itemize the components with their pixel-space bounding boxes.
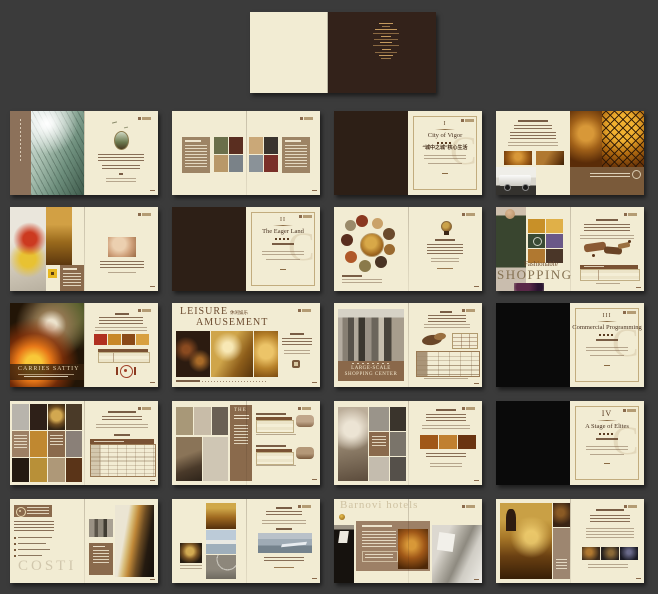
- chapter-text-lines: [428, 163, 462, 166]
- brand-mark: [298, 505, 311, 508]
- table-body: [256, 420, 294, 433]
- page-fold: [84, 207, 85, 291]
- photo-tile: [66, 458, 82, 482]
- toc-line: [381, 36, 391, 37]
- chapter-script-title: Commercial Programming: [570, 325, 644, 332]
- spread-photo-band: [172, 111, 320, 195]
- photo-tile: [30, 431, 47, 457]
- page-fold: [246, 401, 247, 485]
- chapter-text-lines: [586, 347, 628, 352]
- panel-text-lines: [93, 550, 109, 564]
- vertical-text-lines: [20, 119, 21, 161]
- table-caption: [114, 434, 130, 436]
- blank-black-page: [496, 401, 570, 485]
- panel-heading-line: [63, 268, 77, 270]
- paragraph-lines: [14, 521, 54, 533]
- photo-flowers: [514, 283, 544, 291]
- ring-logo: [533, 237, 542, 246]
- caption-lines: [588, 564, 628, 569]
- tile-text-lines: [556, 559, 567, 569]
- chapter-bold-line: [596, 339, 618, 341]
- text-lines: [508, 142, 558, 148]
- photo-tile: [546, 234, 563, 248]
- ornament-rule: [597, 321, 617, 322]
- photo-tile: [66, 404, 82, 430]
- spaced-characters-line: [437, 142, 453, 144]
- knife-icon: [134, 367, 136, 375]
- brand-mark: [299, 215, 312, 218]
- table-header-text: [584, 266, 604, 268]
- spread-award: [334, 207, 482, 291]
- text-lines: [284, 350, 310, 355]
- photo-tile: [66, 431, 82, 457]
- heading-line: [440, 311, 452, 313]
- table-header-text: [94, 441, 124, 443]
- bullet-line: [18, 549, 50, 550]
- text-lines: [266, 511, 302, 517]
- map-dot: [592, 254, 595, 257]
- caption-lines: [342, 279, 382, 284]
- chapter-text-lines: [586, 446, 628, 451]
- bullet: [14, 537, 16, 539]
- page-number: [474, 286, 479, 287]
- toc-line: [373, 45, 399, 46]
- photo-building: [206, 530, 236, 554]
- bullet-line: [18, 537, 52, 538]
- photo-stained-glass: [602, 111, 644, 167]
- intro-text-lines: [98, 154, 144, 162]
- photo-dark: [601, 547, 619, 560]
- photo-restaurant: [420, 435, 438, 449]
- chapter-bold-line: [596, 438, 618, 440]
- panel-heading-line: [285, 140, 301, 142]
- bullet: [14, 555, 16, 557]
- brand-mark: [298, 309, 311, 312]
- photo-tile: [229, 137, 243, 154]
- photo-circle: [375, 256, 387, 268]
- photo-circle: [383, 228, 395, 240]
- newspaper: [437, 532, 455, 552]
- title-carries: CARRIES SATTIY: [18, 366, 80, 372]
- cover-back-page: [250, 12, 328, 93]
- panel-heading-line: [185, 140, 201, 142]
- ornament-rule: [597, 420, 617, 421]
- photo-circle: [372, 218, 383, 229]
- photo-golden-food: [254, 331, 278, 377]
- photo-bar: [176, 331, 210, 377]
- note-line: [424, 378, 468, 380]
- panel-text-lines: [63, 273, 81, 287]
- photo-restaurant: [458, 435, 476, 449]
- brand-mark: [462, 505, 475, 508]
- spread-leisure: LEISURE 休闲娱乐 AMUSEMENT: [172, 303, 320, 387]
- toc-line: [375, 52, 397, 53]
- spread-hotels: Barnovi hotels: [334, 499, 482, 583]
- photo-tile: [546, 219, 563, 233]
- photo-gold-sphere: [180, 543, 202, 563]
- brand-mark: [138, 117, 151, 120]
- spread-chapter-1: C I City of Vigor “城中之城”核心生活: [334, 111, 482, 195]
- spread-luxury: [496, 111, 644, 195]
- photo-restaurant: [439, 435, 457, 449]
- ornament-rule: [273, 225, 293, 226]
- photo-interior: [504, 151, 532, 165]
- heading-line: [436, 409, 456, 411]
- page-number: [474, 480, 479, 481]
- note-box-lines: [365, 554, 393, 558]
- brand-mark: [623, 311, 636, 314]
- intro-text-lines: [106, 178, 136, 182]
- photo-tile: [12, 404, 29, 430]
- page-fold: [84, 499, 85, 583]
- text-lines: [580, 235, 634, 239]
- panel-heading-line: [93, 546, 105, 547]
- page-number: [150, 382, 155, 383]
- chapter-bold-line: [272, 243, 294, 245]
- data-table: [90, 444, 156, 477]
- blank-black-page: [496, 303, 570, 387]
- photo-chef-portrait: [553, 503, 570, 527]
- spread-chapter-4: C IV A Stage of Elites: [496, 401, 644, 485]
- photo-tile: [369, 407, 389, 431]
- spread-mosaic-table: [10, 401, 158, 485]
- toc-line: [373, 33, 399, 34]
- toc-line: [375, 29, 397, 30]
- photo-tile: [229, 155, 243, 172]
- text-lines: [422, 425, 470, 430]
- title-leisure: LEISURE: [180, 307, 228, 317]
- text-tile: [553, 528, 570, 579]
- photo-tile: [390, 457, 406, 481]
- gold-ball-icon: [339, 514, 345, 520]
- bird-mark: [112, 121, 117, 123]
- spaced-characters-line: [275, 238, 291, 240]
- bullet-line: [18, 543, 46, 544]
- page-number: [150, 480, 155, 481]
- page-number: [312, 479, 317, 480]
- photo-office: [194, 407, 211, 435]
- pie-slice: [434, 332, 447, 341]
- emblem-badge-icon: [114, 131, 129, 150]
- note-line: [596, 283, 620, 285]
- spread-intro: [10, 111, 158, 195]
- intro-text-lines: [102, 165, 140, 170]
- spread-buffet: [496, 499, 644, 583]
- toc-line: [382, 26, 390, 27]
- photo-tile: [390, 432, 406, 456]
- rule: [274, 567, 294, 568]
- page-number: [150, 579, 155, 580]
- table-body: [256, 452, 294, 465]
- page-number: [312, 578, 317, 579]
- photo-office: [212, 407, 228, 435]
- title-band: [338, 361, 404, 381]
- brand-mark: [461, 119, 474, 122]
- page-fold: [408, 499, 409, 583]
- photo-circle: [384, 244, 395, 255]
- photo-corridor: [206, 503, 236, 529]
- brand-mark: [624, 505, 637, 508]
- chapter-text-lines: [262, 251, 304, 256]
- brand-mark: [462, 309, 475, 312]
- text-lines: [99, 317, 143, 325]
- photo-tile: [390, 407, 406, 431]
- spread-chapter-2: C II The Eager Land: [172, 207, 320, 291]
- page-fold: [570, 499, 571, 583]
- text-lines: [282, 338, 312, 346]
- costi-watermark: COSTI: [18, 559, 76, 574]
- table-body: [580, 269, 640, 281]
- blank-brown-page: [172, 207, 246, 291]
- photo-restaurant-inset: [398, 529, 428, 569]
- fork-icon: [116, 367, 118, 375]
- photo-food: [122, 334, 135, 345]
- brand-mark: [300, 117, 313, 120]
- photo-tile: [264, 155, 278, 172]
- photo-dark: [620, 547, 638, 560]
- photo-circle: [341, 234, 353, 246]
- caption-line: [256, 465, 296, 467]
- bird-mark: [124, 127, 128, 129]
- spread-chapter-3: C III Commercial Programming: [496, 303, 644, 387]
- photo-interior: [536, 151, 564, 165]
- photo-portrait: [108, 237, 136, 257]
- chapter-text-lines: [266, 259, 300, 262]
- brand-mark: [623, 409, 636, 412]
- text-lines: [108, 272, 136, 275]
- caption-heading: [342, 275, 362, 277]
- tile-text-lines: [14, 435, 27, 449]
- group-caption: [256, 445, 286, 447]
- page-fold: [246, 499, 247, 583]
- heading-line: [290, 333, 304, 335]
- end-mark: [604, 365, 610, 366]
- badge-icon: [632, 170, 641, 179]
- spaced-characters-line: [352, 363, 390, 364]
- toc-line: [381, 58, 391, 59]
- title-amusement: AMUSEMENT: [196, 318, 268, 328]
- title-large-scale: LARGE-SCALE: [338, 366, 404, 371]
- intro-mark: [119, 173, 123, 175]
- chapter-script-title: A Stage of Elites: [570, 424, 644, 431]
- photo-food: [94, 334, 107, 345]
- page-number: [312, 190, 317, 191]
- title-shopping: SHOPPING: [497, 268, 573, 281]
- mini-table: [452, 333, 478, 349]
- photo-office: [176, 407, 193, 435]
- text-lines: [95, 327, 147, 331]
- oval-logo-icon: [16, 507, 26, 517]
- hotels-watermark: Barnovi hotels: [340, 500, 418, 511]
- chapter-script-title: The Eager Land: [246, 229, 320, 236]
- photo-circle: [345, 220, 356, 231]
- panel-text-lines: [185, 145, 207, 169]
- panel-heading-line: [362, 525, 392, 527]
- spaced-characters-line: [599, 433, 615, 435]
- spread-street-life: [10, 207, 158, 291]
- page-fold: [84, 401, 85, 485]
- end-mark: [442, 173, 448, 174]
- toc-line: [379, 55, 393, 56]
- car-wheel: [504, 184, 511, 191]
- title-shopping-center: SHOPPING CENTER: [338, 372, 404, 377]
- spread-dining: CARRIES SATTIY: [10, 303, 158, 387]
- page-fold: [408, 401, 409, 485]
- band-text-lines: [590, 173, 630, 178]
- photo-sepia-figures: [176, 437, 202, 481]
- chapter-script-title: City of Vigor: [408, 133, 482, 140]
- text-lines: [514, 125, 552, 129]
- page-number: [150, 190, 155, 191]
- photo-goblets: [211, 331, 253, 377]
- caption-heading: [176, 380, 200, 382]
- text-lines: [100, 261, 144, 269]
- toc-line: [374, 39, 398, 40]
- page-number: [474, 579, 479, 580]
- page-fold: [408, 207, 409, 291]
- photo-tile: [249, 137, 263, 154]
- cover-contents-lines: [367, 23, 405, 83]
- caption-lines: [180, 565, 202, 569]
- text-lines: [264, 557, 304, 563]
- car-wheel: [522, 184, 529, 191]
- spread-access: [172, 499, 320, 583]
- photo-tile: [214, 155, 228, 172]
- page-number: [312, 382, 317, 383]
- text-lines: [590, 515, 630, 524]
- chapter-text-lines: [424, 155, 466, 160]
- photo-writer: [338, 407, 368, 481]
- text-lines: [102, 416, 142, 421]
- panel-text-lines: [362, 531, 396, 547]
- photo-circle: [359, 260, 371, 272]
- photo-skyscraper: [31, 111, 84, 195]
- text-lines: [428, 315, 466, 322]
- bullet-line: [18, 555, 42, 556]
- page-number: [636, 287, 641, 288]
- chapter-cn-title: “城中之城”核心生活: [408, 146, 482, 151]
- product-photo: [296, 415, 314, 427]
- text-lines: [426, 453, 466, 459]
- photo-road-aerial: [206, 555, 236, 579]
- text-lines: [431, 258, 459, 264]
- chapter-text-lines: [590, 355, 624, 358]
- page-fold: [84, 303, 85, 387]
- heading-line: [435, 239, 455, 241]
- ornament-rule: [435, 129, 455, 130]
- bullet: [14, 543, 16, 545]
- text-lines: [262, 520, 306, 525]
- panel-text-lines: [285, 145, 307, 169]
- toc-line: [382, 49, 391, 50]
- dining-logo-dot: [124, 369, 127, 372]
- tile-text-lines: [50, 435, 63, 447]
- chapter-text-lines: [590, 454, 624, 457]
- photo-circle: [345, 251, 357, 263]
- photo-tile: [214, 137, 228, 154]
- photo-pocket-watch: [48, 404, 65, 430]
- rule: [437, 268, 453, 269]
- photo-dark: [582, 547, 600, 560]
- map-dot: [628, 240, 631, 243]
- tile-text-lines: [372, 436, 386, 448]
- spaced-characters-line: [599, 334, 615, 336]
- buffet-figure: [506, 509, 516, 531]
- product-photo: [296, 447, 314, 459]
- heading-line: [596, 219, 618, 221]
- bullet: [14, 549, 16, 551]
- blank-brown-page: [334, 111, 408, 195]
- photo-tile: [369, 457, 389, 481]
- toc-line: [380, 42, 392, 43]
- page-number: [636, 578, 641, 579]
- spread-consulting: COSTI: [10, 499, 158, 583]
- caption-line: [256, 434, 296, 436]
- globe-stand: [444, 231, 449, 235]
- text-lines: [586, 528, 634, 538]
- spread-shopping-center: LARGE-SCALE SHOPPING CENTER: [334, 303, 482, 387]
- text-lines: [584, 224, 630, 232]
- heading-line: [276, 528, 292, 530]
- photo-sculpture: [115, 505, 154, 577]
- text-lines: [427, 244, 463, 254]
- photo-circle-center: [360, 233, 384, 257]
- text-lines: [96, 424, 148, 430]
- cover-spine: [327, 12, 329, 93]
- text-lines: [426, 414, 466, 422]
- photo-meeting: [89, 519, 113, 537]
- brand-mark: [138, 407, 151, 410]
- text-lines: [510, 132, 556, 140]
- band-rule: [18, 374, 74, 375]
- photo-tile: [12, 458, 29, 482]
- page-fold: [246, 111, 247, 195]
- text-lines: [424, 324, 470, 328]
- page-fold: [408, 303, 409, 387]
- heading-line: [518, 120, 548, 122]
- page-fold: [84, 111, 85, 195]
- photo-tile: [528, 219, 545, 233]
- photo-business-people: [338, 309, 404, 361]
- logo-glyph: [51, 272, 54, 275]
- caption-dots: [202, 381, 266, 382]
- end-mark: [280, 269, 286, 270]
- group-caption: [256, 413, 286, 415]
- end-mark: [604, 463, 610, 464]
- title-leisure-cn: 休闲娱乐: [230, 311, 248, 316]
- photo-tile: [48, 458, 65, 482]
- photo-tile: [249, 155, 263, 172]
- toc-line: [379, 23, 393, 24]
- photo-shop-interior: [46, 207, 72, 265]
- photo-desk: [203, 437, 228, 481]
- table-body: [98, 352, 150, 363]
- photo-tile: [264, 137, 278, 154]
- photo-circle: [356, 215, 368, 227]
- page-number: [150, 286, 155, 287]
- brand-mark: [138, 309, 151, 312]
- heading-line: [108, 411, 136, 413]
- photo-lobby: [570, 111, 602, 167]
- page-fold: [570, 207, 571, 291]
- brand-mark: [462, 213, 475, 216]
- brand-mark: [624, 213, 637, 216]
- logo-dot: [19, 510, 21, 512]
- brand-mark: [298, 407, 311, 410]
- waiter-shirt: [338, 531, 349, 543]
- photo-tile: [30, 404, 47, 430]
- cover-spread: [250, 12, 436, 93]
